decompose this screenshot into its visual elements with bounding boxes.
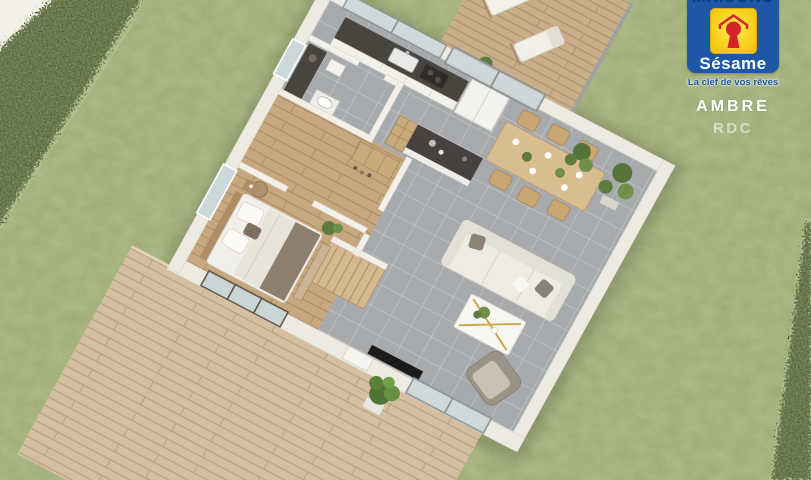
plan-model-name: AMBRE [687, 98, 779, 116]
brand-logo: MAISONS Sésame [687, 0, 779, 73]
keyhole-house-icon [710, 8, 757, 54]
floorplan-screenshot: MAISONS Sésame La clef de vos rêves AMBR… [0, 0, 811, 480]
keyhole-house-icon-art [710, 8, 757, 54]
brand-tagline: La clef de vos rêves [687, 77, 779, 88]
brand-name-top: MAISONS [687, 0, 779, 7]
brand-name-bottom: Sésame [687, 54, 779, 74]
plan-floor-label: RDC [687, 120, 779, 137]
brand-column: MAISONS Sésame La clef de vos rêves AMBR… [687, 0, 779, 137]
